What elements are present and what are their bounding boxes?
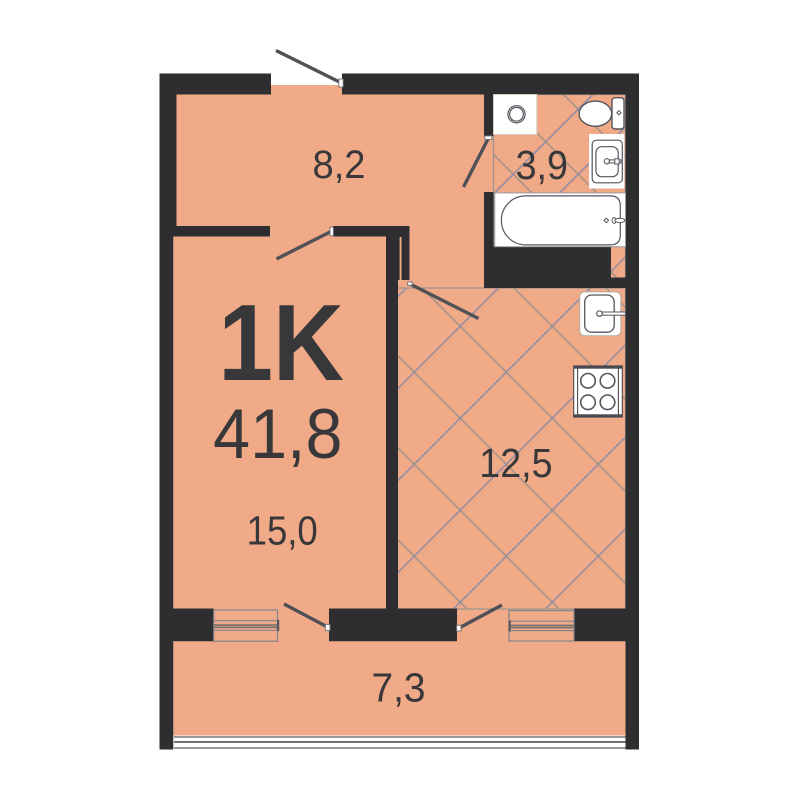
svg-text:15,0: 15,0 — [247, 509, 318, 554]
svg-text:8,2: 8,2 — [312, 143, 365, 187]
svg-text:1K: 1K — [218, 282, 344, 404]
svg-text:7,3: 7,3 — [371, 665, 425, 710]
svg-text:12,5: 12,5 — [479, 442, 552, 487]
svg-text:41,8: 41,8 — [213, 394, 342, 473]
svg-text:3,9: 3,9 — [516, 142, 568, 188]
